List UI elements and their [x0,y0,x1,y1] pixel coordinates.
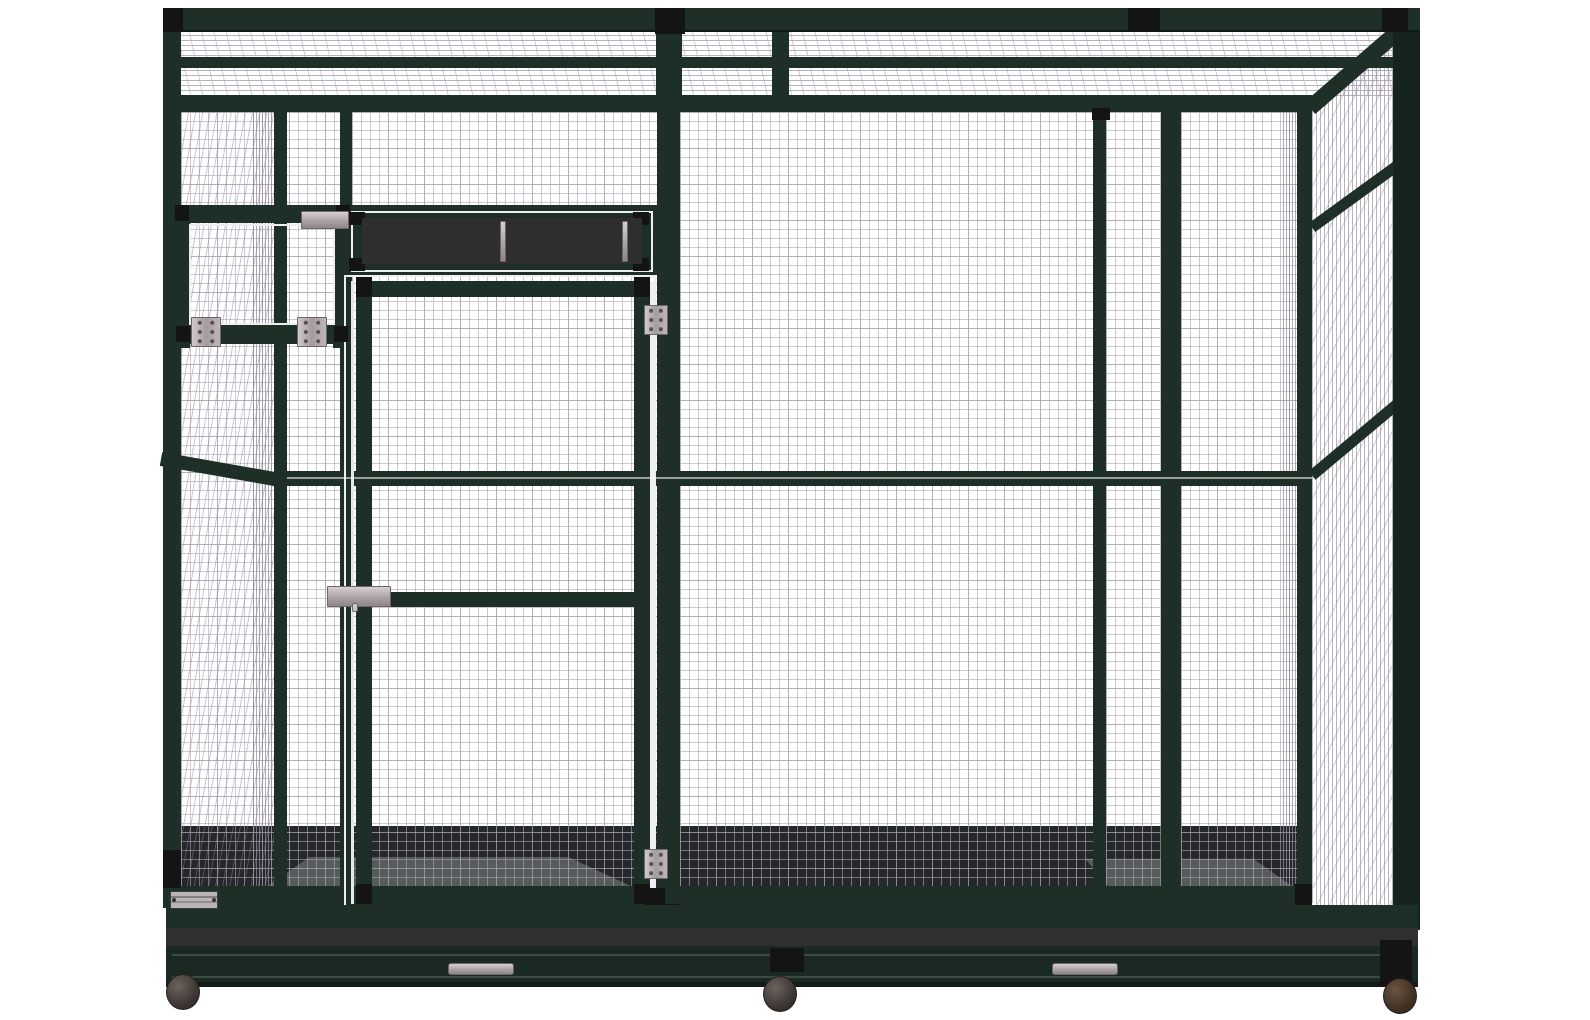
door-top-rail [356,281,650,297]
door-right-stile [634,281,650,904]
mesh-seam-corner [1283,112,1297,888]
hatch-hinge-left [191,317,221,347]
left-post-foot [163,850,181,888]
transom-bar-1 [500,221,506,262]
door-block-tl [356,277,372,297]
hatch-block-bl [176,326,190,342]
mid-rail-highlight [287,477,1312,479]
door-lock-rail [372,592,634,607]
hatch-latch [301,211,349,229]
skirt-groove-2 [172,976,1412,978]
center-post [657,112,680,888]
caster-right [1383,978,1417,1014]
caster-left [166,974,200,1010]
tray-handle-right [1052,963,1118,975]
hatch-block-br [334,326,348,342]
door-block-tr [634,277,650,297]
nameplate-screw-right [212,898,216,902]
brand-nameplate [170,891,218,909]
front-top-rail [163,95,1312,112]
tray-handle-left [448,963,514,975]
mesh-panel-main [680,112,1093,888]
mesh-panel-right-a [1106,112,1161,888]
top-band [163,8,1420,32]
front-corner-post [1297,95,1312,905]
aviary-cage-render [0,0,1590,1020]
hatch-hinge-right [297,317,327,347]
cap-top-mid-right [1128,8,1160,32]
mesh-panel-right-b [1181,112,1297,888]
door-hinge-bottom [644,849,668,879]
base-tray-band [166,928,1418,948]
door-bolt-knob [352,603,358,612]
roof-purlin [180,57,1393,68]
caster-center [763,976,797,1012]
door-gap-line-right [650,281,654,904]
mesh-seam-left [253,112,275,888]
center-post-upper [656,30,682,96]
hatch-block-tl [175,205,189,221]
transom-bar-2 [622,221,628,262]
seam-rail [274,112,287,888]
rail-right-a [1093,112,1106,888]
nameplate-screw-left [172,898,176,902]
side-mesh [1312,30,1393,930]
cap-top-center [655,8,685,34]
base-top-strip [166,905,1418,930]
rail-right-b [1161,112,1181,888]
cap-rail-right-a [1092,108,1110,120]
left-post [163,30,181,890]
base-block-center [770,948,804,972]
cap-top-left [163,8,183,32]
right-side-wall [1312,0,1420,960]
door-bottom-rail [356,886,650,904]
door-slide-bolt [327,586,391,607]
cap-top-right [1382,8,1408,32]
door-block-bl [356,884,372,904]
door-hinge-top [644,305,668,335]
back-corner-post [1393,30,1420,930]
